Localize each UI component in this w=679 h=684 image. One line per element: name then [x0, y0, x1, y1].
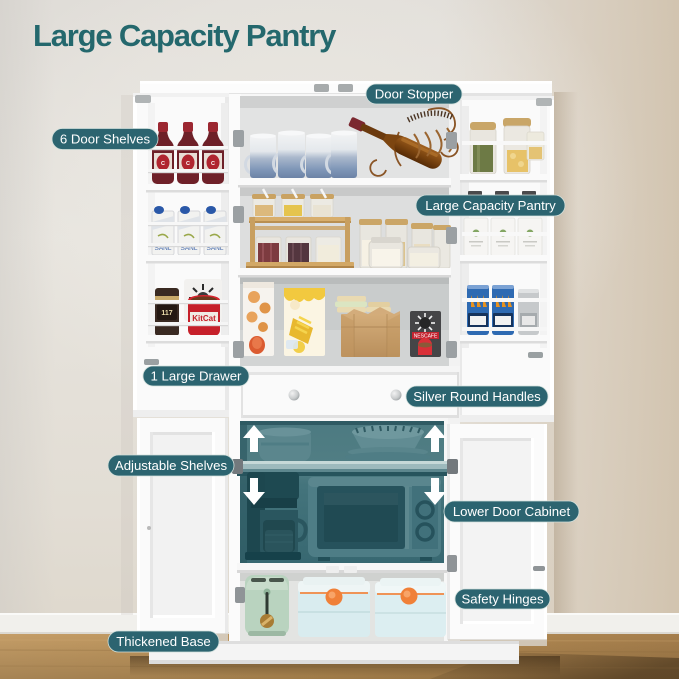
svg-text:117: 117	[161, 310, 172, 317]
svg-text:Lower Door Cabinet: Lower Door Cabinet	[453, 504, 571, 519]
svg-text:C: C	[186, 161, 190, 167]
svg-text:Silver Round Handles: Silver Round Handles	[413, 389, 541, 404]
svg-text:6 Door Shelves: 6 Door Shelves	[60, 132, 151, 147]
svg-text:Safety Hinges: Safety Hinges	[461, 592, 544, 607]
svg-text:Large Capacity Pantry: Large Capacity Pantry	[425, 198, 556, 213]
svg-text:KitCat: KitCat	[192, 314, 216, 323]
svg-text:Large Capacity Pantry: Large Capacity Pantry	[33, 18, 337, 53]
svg-text:Thickened Base: Thickened Base	[116, 634, 211, 649]
svg-text:1 Large Drawer: 1 Large Drawer	[151, 369, 242, 384]
svg-text:Adjustable Shelves: Adjustable Shelves	[115, 458, 228, 473]
svg-text:Door Stopper: Door Stopper	[375, 87, 454, 102]
svg-text:C: C	[211, 161, 215, 167]
svg-text:C: C	[161, 161, 165, 167]
